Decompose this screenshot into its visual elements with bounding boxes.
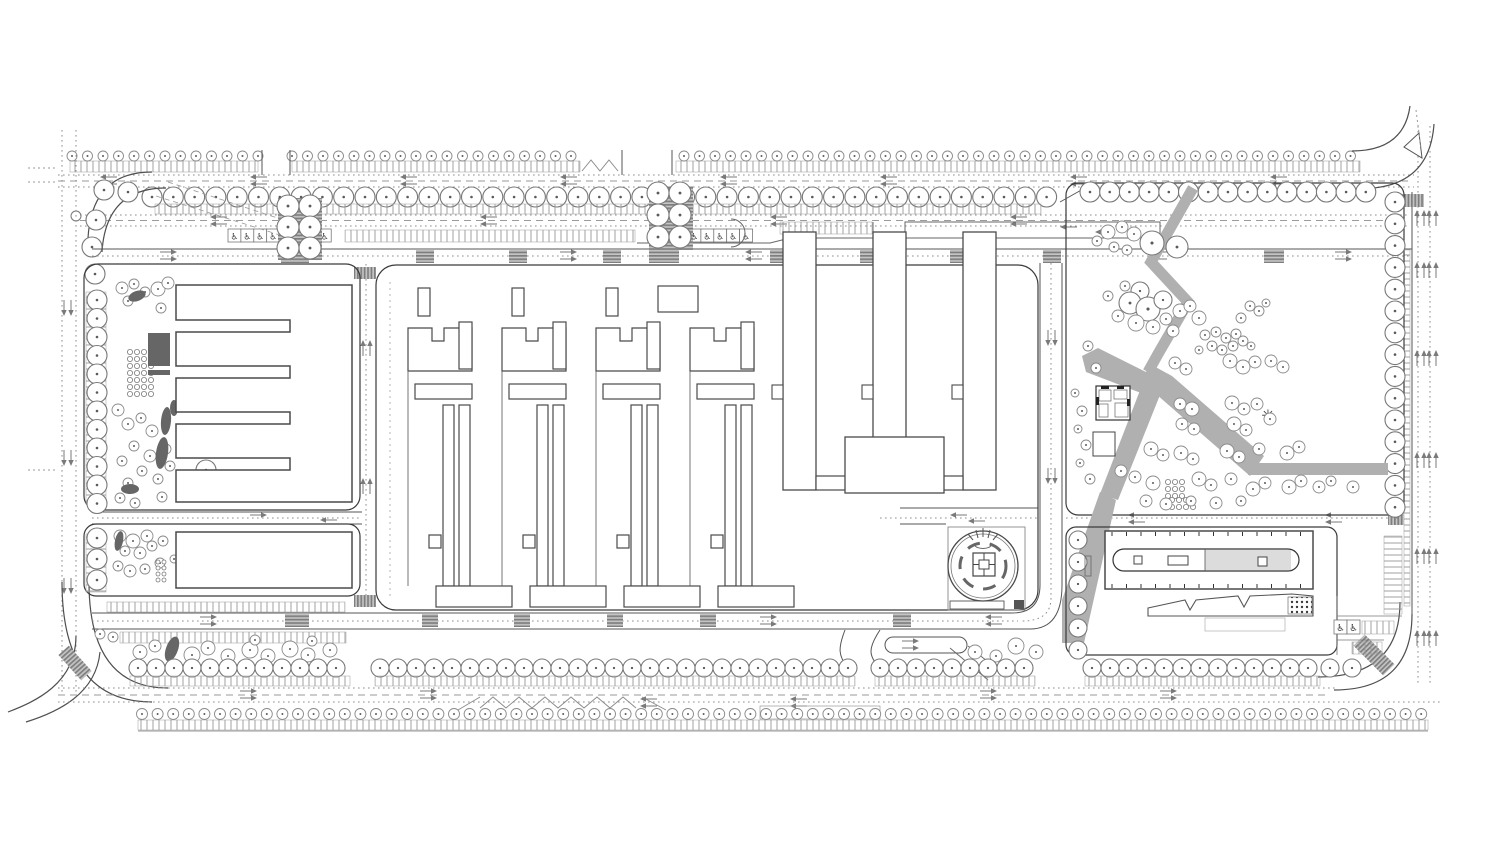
tree-center bbox=[1351, 667, 1353, 669]
accessible-icon: ♿ bbox=[230, 232, 238, 242]
tree-center bbox=[1135, 322, 1137, 324]
tree-center bbox=[505, 667, 507, 669]
pedestrian-path bbox=[1148, 188, 1193, 372]
tree-center bbox=[415, 667, 417, 669]
arrow-icon bbox=[251, 688, 257, 693]
shrub-grid bbox=[141, 377, 146, 382]
tree-center bbox=[155, 667, 157, 669]
accessible-icon: ♿ bbox=[703, 232, 711, 242]
tree-center bbox=[91, 246, 94, 249]
tree-center bbox=[968, 713, 970, 715]
shrub-mass bbox=[148, 370, 170, 375]
tree-center bbox=[656, 713, 658, 715]
building bbox=[647, 405, 658, 586]
tree-center bbox=[1162, 299, 1164, 301]
rect bbox=[950, 601, 1004, 609]
tree-center bbox=[1394, 223, 1397, 226]
arrow-icon bbox=[1433, 350, 1438, 356]
tree-center bbox=[267, 655, 269, 657]
tree-center bbox=[172, 196, 175, 199]
tree-center bbox=[313, 713, 315, 715]
tree-center bbox=[1295, 713, 1297, 715]
tree-center bbox=[1394, 332, 1397, 335]
building bbox=[783, 232, 816, 490]
arrow-icon bbox=[211, 621, 217, 626]
tree-center bbox=[1152, 482, 1154, 484]
tree-center bbox=[112, 636, 114, 638]
tree-center bbox=[250, 713, 252, 715]
rect bbox=[885, 637, 967, 653]
tree-center bbox=[1238, 456, 1240, 458]
arrow-icon bbox=[1346, 249, 1352, 254]
crosswalk bbox=[285, 614, 309, 627]
building bbox=[845, 437, 944, 493]
tree-center bbox=[470, 196, 473, 199]
tree-center bbox=[173, 667, 175, 669]
tree-center bbox=[1334, 155, 1336, 157]
tree-center bbox=[1303, 155, 1305, 157]
tree-center bbox=[1120, 470, 1122, 472]
building bbox=[718, 586, 794, 607]
tree-center bbox=[1202, 713, 1204, 715]
tree-center bbox=[287, 226, 290, 229]
tree-center bbox=[96, 410, 99, 413]
tree-center bbox=[309, 247, 312, 250]
tree-center bbox=[1394, 419, 1397, 422]
crosswalk bbox=[1264, 250, 1284, 263]
tree-center bbox=[1150, 448, 1152, 450]
tree-center bbox=[385, 196, 388, 199]
arrow-icon bbox=[1414, 210, 1419, 216]
tree-center bbox=[1243, 408, 1245, 410]
tree-center bbox=[1318, 486, 1320, 488]
tree-center bbox=[515, 713, 517, 715]
tree-center bbox=[353, 155, 355, 157]
tree-center bbox=[1124, 285, 1126, 287]
tree-center bbox=[792, 155, 794, 157]
tree-center bbox=[1024, 196, 1027, 199]
tree-center bbox=[94, 273, 97, 276]
shrub-grid bbox=[134, 370, 139, 375]
tree-center bbox=[379, 667, 381, 669]
road-curve bbox=[975, 545, 991, 549]
tree-center bbox=[631, 667, 633, 669]
rect bbox=[1205, 618, 1285, 631]
tree-center bbox=[1152, 326, 1154, 328]
tree-center bbox=[129, 570, 131, 572]
tree-center bbox=[1093, 713, 1095, 715]
tree-center bbox=[1174, 362, 1176, 364]
crosswalk bbox=[893, 614, 911, 627]
tree-center bbox=[577, 667, 579, 669]
parking-hatch bbox=[292, 161, 580, 172]
tree-center bbox=[118, 155, 120, 157]
shrub-grid bbox=[156, 560, 160, 564]
tree-center bbox=[1113, 246, 1115, 248]
tree-center bbox=[513, 196, 516, 199]
tree-center bbox=[96, 373, 99, 376]
tree-center bbox=[1394, 353, 1397, 356]
crosswalk bbox=[509, 250, 527, 263]
tree-center bbox=[219, 713, 221, 715]
shrub-grid bbox=[148, 377, 153, 382]
tree-center bbox=[1230, 478, 1232, 480]
tree-center bbox=[391, 713, 393, 715]
tree-center bbox=[823, 155, 825, 157]
tree-center bbox=[1307, 667, 1309, 669]
tree-center bbox=[541, 667, 543, 669]
building bbox=[647, 322, 660, 369]
arrow-icon bbox=[431, 695, 437, 700]
tree-center bbox=[879, 667, 881, 669]
arrow-icon bbox=[1414, 452, 1419, 458]
tree-center bbox=[555, 155, 557, 157]
tree-center bbox=[890, 713, 892, 715]
tree-center bbox=[1240, 317, 1242, 319]
tree-center bbox=[1030, 713, 1032, 715]
tree-center bbox=[776, 155, 778, 157]
rect bbox=[1096, 397, 1099, 405]
tree-center bbox=[359, 713, 361, 715]
tree-center bbox=[555, 196, 558, 199]
tree-center bbox=[703, 713, 705, 715]
tree-center bbox=[157, 288, 159, 290]
building bbox=[697, 384, 754, 399]
tree-center bbox=[1191, 408, 1193, 410]
tree-center bbox=[364, 196, 367, 199]
tree-center bbox=[843, 713, 845, 715]
tree-center bbox=[1229, 360, 1231, 362]
tree-center bbox=[1352, 486, 1354, 488]
tree-center bbox=[162, 540, 164, 542]
tree-center bbox=[679, 192, 682, 195]
tree-center bbox=[133, 445, 135, 447]
arrow-icon bbox=[1421, 210, 1426, 216]
arrow-icon bbox=[560, 181, 566, 186]
shrub-grid bbox=[141, 349, 146, 354]
crosswalk bbox=[1043, 250, 1061, 263]
shrub-grid bbox=[141, 363, 146, 368]
tree-center bbox=[453, 713, 455, 715]
tree-center bbox=[1102, 155, 1104, 157]
arrow-icon bbox=[880, 181, 886, 186]
tree-center bbox=[96, 391, 99, 394]
tree-center bbox=[974, 651, 976, 653]
tree-center bbox=[462, 155, 464, 157]
tree-center bbox=[1195, 155, 1197, 157]
shrub-grid bbox=[162, 572, 166, 576]
tree-center bbox=[829, 667, 831, 669]
tree-center bbox=[1179, 403, 1181, 405]
arrow-icon bbox=[68, 588, 73, 594]
crosswalk bbox=[354, 595, 376, 607]
tree-center bbox=[321, 196, 324, 199]
tree-center bbox=[747, 196, 750, 199]
accessible-icon: ♿ bbox=[729, 232, 737, 242]
tree-center bbox=[1045, 196, 1048, 199]
tree-center bbox=[1345, 191, 1348, 194]
tree-center bbox=[705, 196, 708, 199]
tree-center bbox=[124, 550, 126, 552]
parking-hatch bbox=[1384, 536, 1402, 614]
accessible-icon: ♿ bbox=[256, 232, 264, 242]
tree-center bbox=[151, 545, 153, 547]
tree-center bbox=[1077, 539, 1079, 541]
tree-center bbox=[721, 667, 723, 669]
shrub-grid bbox=[1165, 486, 1170, 491]
tree-center bbox=[1319, 155, 1321, 157]
tree-center bbox=[547, 713, 549, 715]
shrub-grid bbox=[141, 384, 146, 389]
tree-center bbox=[811, 667, 813, 669]
arrow-icon bbox=[367, 340, 372, 346]
tree-center bbox=[328, 713, 330, 715]
tree-center bbox=[1077, 561, 1079, 563]
tree-center bbox=[1286, 191, 1289, 194]
tree-center bbox=[1227, 191, 1230, 194]
tree-center bbox=[1055, 155, 1057, 157]
tree-center bbox=[1394, 266, 1397, 269]
tree-center bbox=[1146, 307, 1149, 310]
arrow-icon bbox=[1433, 210, 1438, 216]
tree-center bbox=[869, 155, 871, 157]
tree-center bbox=[952, 713, 954, 715]
rect bbox=[1127, 399, 1130, 406]
shrub-grid bbox=[162, 560, 166, 564]
tree-center bbox=[317, 667, 319, 669]
tree-center bbox=[406, 713, 408, 715]
tree-center bbox=[939, 196, 942, 199]
tree-center bbox=[807, 155, 809, 157]
tree-center bbox=[1040, 155, 1042, 157]
tree-center bbox=[1165, 503, 1167, 505]
rect bbox=[979, 560, 989, 569]
tree-center bbox=[161, 496, 163, 498]
tree-center bbox=[446, 155, 448, 157]
tree-center bbox=[718, 713, 720, 715]
tree-center bbox=[226, 155, 228, 157]
tree-center bbox=[96, 447, 99, 450]
tree-center bbox=[667, 667, 669, 669]
tree-center bbox=[400, 155, 402, 157]
tree-center bbox=[207, 647, 209, 649]
tree-center bbox=[203, 713, 205, 715]
tree-center bbox=[121, 460, 123, 462]
building bbox=[711, 535, 723, 548]
road-curve bbox=[26, 652, 100, 722]
arrow-icon bbox=[1426, 262, 1431, 268]
tree-center bbox=[309, 226, 312, 229]
tree-center bbox=[117, 565, 119, 567]
tree-center bbox=[477, 155, 479, 157]
shrub-grid bbox=[127, 370, 132, 375]
tree-center bbox=[683, 155, 685, 157]
tree-center bbox=[827, 713, 829, 715]
tree-center bbox=[995, 655, 997, 657]
tree-center bbox=[1298, 446, 1300, 448]
building bbox=[176, 285, 352, 502]
tree-center bbox=[1252, 488, 1254, 490]
tree-center bbox=[437, 713, 439, 715]
tree-center bbox=[431, 155, 433, 157]
left-bottom-parcel bbox=[84, 524, 360, 596]
tree-center bbox=[577, 196, 580, 199]
shrub-grid bbox=[134, 377, 139, 382]
tree-center bbox=[739, 667, 741, 669]
tree-center bbox=[263, 667, 265, 669]
tree-center bbox=[1286, 452, 1288, 454]
tree-center bbox=[157, 478, 159, 480]
tree-center bbox=[172, 713, 174, 715]
tree-center bbox=[151, 196, 154, 199]
building bbox=[963, 232, 996, 490]
parking-hatch bbox=[676, 161, 1360, 172]
accessible-icon: ♿ bbox=[716, 232, 724, 242]
tree-center bbox=[1257, 155, 1259, 157]
arrow-icon bbox=[1426, 630, 1431, 636]
tree-center bbox=[266, 713, 268, 715]
arrow-icon bbox=[1045, 340, 1050, 346]
tree-center bbox=[1085, 444, 1087, 446]
bottom-right-parcel: ♿♿ bbox=[1066, 527, 1402, 659]
crosswalk bbox=[416, 250, 434, 263]
accessible-icon: ♿ bbox=[1336, 623, 1345, 634]
rect bbox=[952, 385, 963, 399]
shrub-grid bbox=[1172, 479, 1177, 484]
tree-center bbox=[1253, 667, 1255, 669]
tree-center bbox=[1015, 645, 1017, 647]
arrow-icon bbox=[431, 688, 437, 693]
tree-center bbox=[1185, 368, 1187, 370]
tree-center bbox=[96, 317, 99, 320]
tree-center bbox=[854, 155, 856, 157]
tree-center bbox=[193, 196, 196, 199]
median-chevrons bbox=[582, 160, 618, 171]
tree-center bbox=[1249, 713, 1251, 715]
tree-center bbox=[931, 155, 933, 157]
tree-center bbox=[714, 155, 716, 157]
tree-center bbox=[1198, 478, 1200, 480]
tree-center bbox=[1035, 651, 1037, 653]
arrow-icon bbox=[1414, 630, 1419, 636]
tree-center bbox=[1171, 713, 1173, 715]
tree-center bbox=[1210, 484, 1212, 486]
tree-center bbox=[900, 155, 902, 157]
tree-center bbox=[595, 667, 597, 669]
tree-center bbox=[96, 502, 99, 505]
tree-center bbox=[96, 465, 99, 468]
tree-center bbox=[235, 713, 237, 715]
tree-center bbox=[1003, 196, 1006, 199]
canopy-hatch bbox=[1288, 597, 1312, 614]
accessible-icon: ♿ bbox=[269, 232, 277, 242]
arrow-icon bbox=[745, 256, 751, 261]
tree-center bbox=[289, 648, 291, 650]
tree-center bbox=[291, 155, 293, 157]
arrow-icon bbox=[1414, 350, 1419, 356]
arrow-icon bbox=[250, 181, 256, 186]
arrow-icon bbox=[991, 688, 997, 693]
arrow-icon bbox=[1421, 262, 1426, 268]
building bbox=[459, 405, 470, 586]
arrow-icon bbox=[1052, 478, 1057, 484]
crosswalk bbox=[514, 614, 530, 627]
tree-center bbox=[875, 196, 878, 199]
tree-center bbox=[1226, 450, 1228, 452]
tree-center bbox=[1095, 367, 1097, 369]
tree-center bbox=[102, 155, 104, 157]
tree-center bbox=[215, 196, 218, 199]
tree-center bbox=[1280, 713, 1282, 715]
tree-center bbox=[236, 196, 239, 199]
tree-center bbox=[619, 196, 622, 199]
tree-center bbox=[1226, 155, 1228, 157]
plaza-square bbox=[1093, 432, 1115, 456]
shrub-grid bbox=[134, 391, 139, 396]
tree-center bbox=[679, 214, 682, 217]
tree-center bbox=[1215, 331, 1217, 333]
tree-center bbox=[127, 423, 129, 425]
tree-center bbox=[338, 155, 340, 157]
tree-center bbox=[1270, 360, 1272, 362]
tree-center bbox=[885, 155, 887, 157]
shrub-grid bbox=[1179, 479, 1184, 484]
arrow-icon bbox=[400, 181, 406, 186]
tree-center bbox=[699, 155, 701, 157]
tree-center bbox=[1077, 713, 1079, 715]
tree-center bbox=[1258, 310, 1260, 312]
tree-center bbox=[487, 667, 489, 669]
tree-center bbox=[1288, 486, 1290, 488]
tree-center bbox=[1258, 448, 1260, 450]
tree-center bbox=[1024, 155, 1026, 157]
tree-center bbox=[1015, 713, 1017, 715]
road-curve bbox=[1030, 585, 1062, 629]
tree-center bbox=[307, 654, 309, 656]
tree-center bbox=[127, 191, 130, 194]
tree-center bbox=[832, 196, 835, 199]
building bbox=[523, 535, 535, 548]
building bbox=[606, 288, 618, 316]
tree-center bbox=[1249, 305, 1251, 307]
tree-center bbox=[329, 649, 331, 651]
tree-center bbox=[534, 196, 537, 199]
tree-center bbox=[796, 713, 798, 715]
arrow-icon bbox=[1045, 478, 1050, 484]
arrow-icon bbox=[1433, 452, 1438, 458]
tree-center bbox=[154, 645, 156, 647]
tree-center bbox=[1221, 349, 1223, 351]
tree-center bbox=[121, 287, 123, 289]
shrub-grid bbox=[141, 391, 146, 396]
pedestrian-path bbox=[1248, 463, 1388, 475]
tree-center bbox=[127, 482, 129, 484]
arrow-icon bbox=[913, 638, 919, 643]
building bbox=[436, 586, 512, 607]
site-plan-canvas: ♿♿♿♿♿♿♿♿♿♿♿♿♿✳♿♿ bbox=[0, 0, 1500, 857]
tree-center bbox=[1172, 330, 1174, 332]
tree-center bbox=[1256, 403, 1258, 405]
tree-center bbox=[141, 470, 143, 472]
tree-center bbox=[397, 667, 399, 669]
tree-center bbox=[415, 155, 417, 157]
arrow-icon bbox=[1171, 695, 1177, 700]
tree-center bbox=[1231, 402, 1233, 404]
arrow-icon bbox=[1095, 229, 1101, 234]
tree-center bbox=[757, 667, 759, 669]
shrub-grid bbox=[156, 566, 160, 570]
parking-hatch bbox=[107, 602, 345, 612]
